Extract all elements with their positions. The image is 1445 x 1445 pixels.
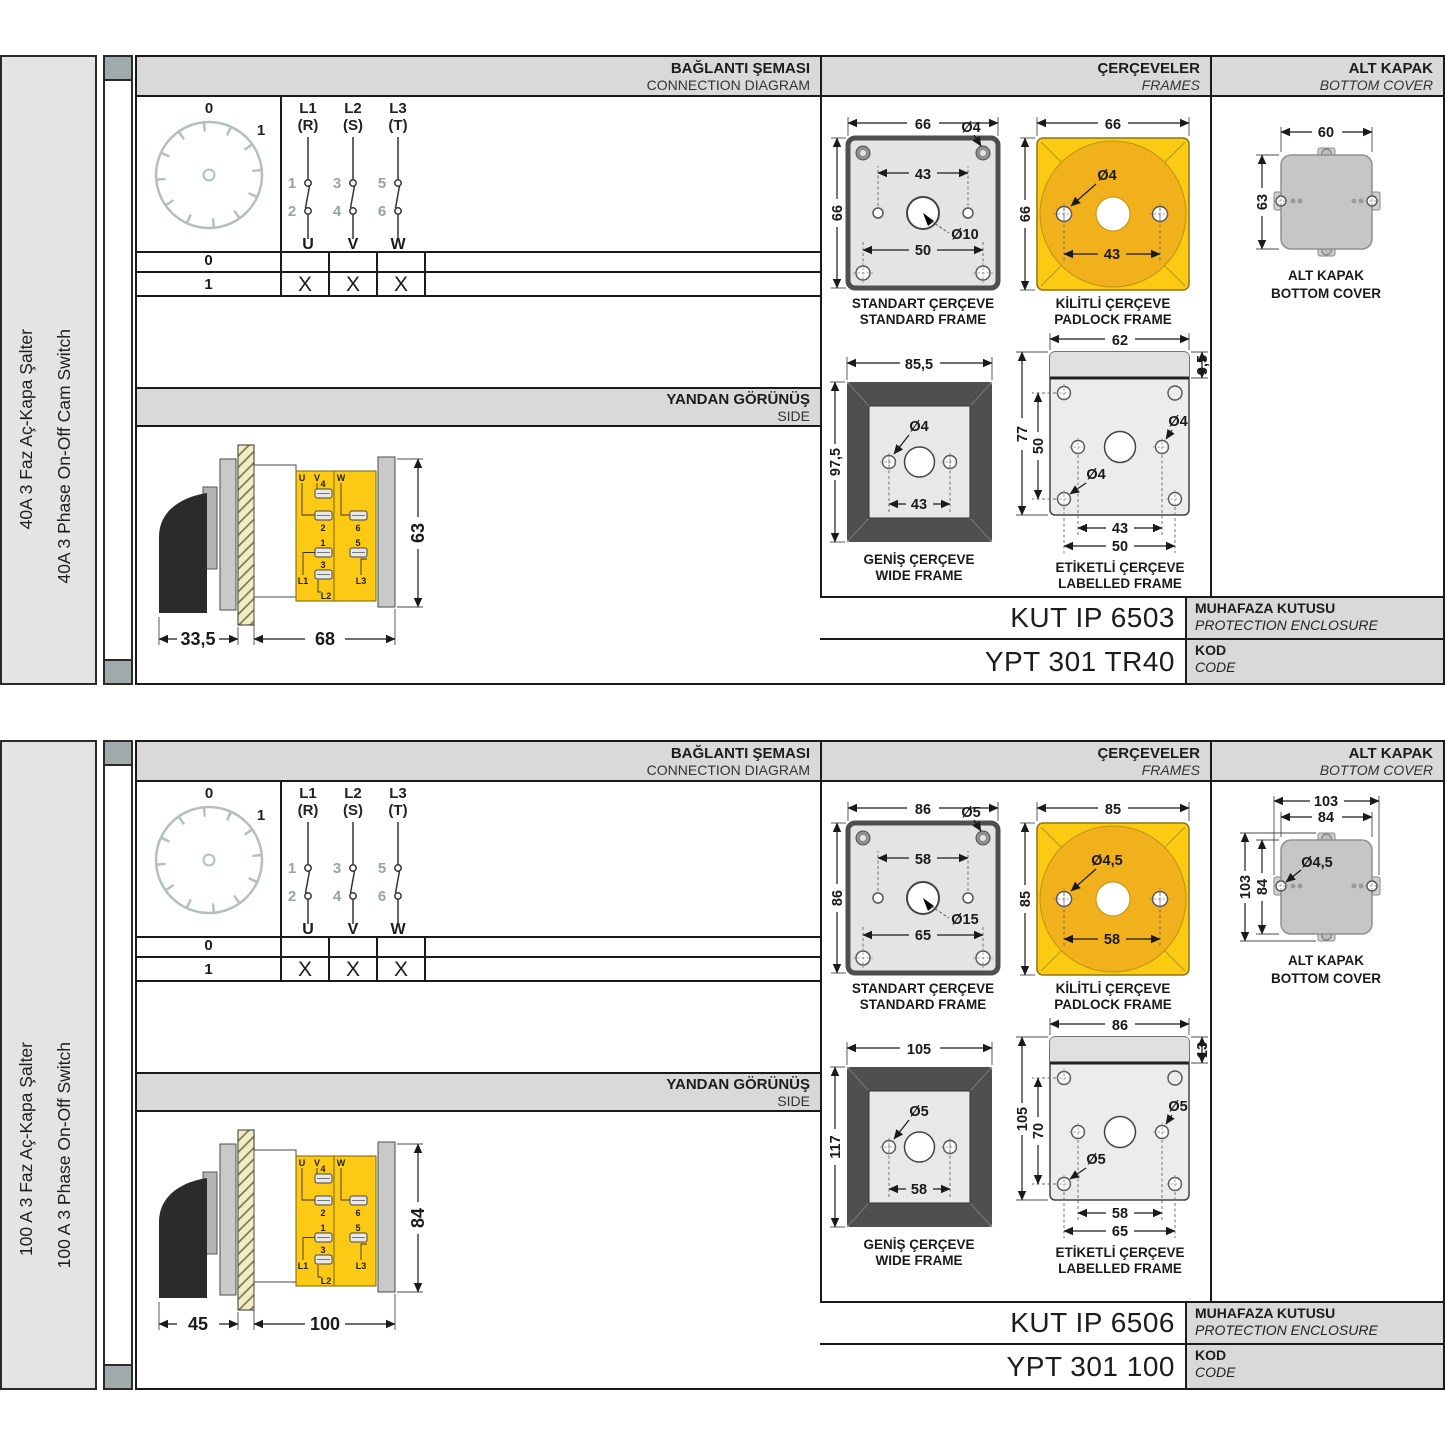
header-connection-en: CONNECTION DIAGRAM xyxy=(137,77,810,93)
phase-l2-label: L2 xyxy=(344,785,362,802)
dim-height: 84 xyxy=(408,1208,428,1228)
dim-outer-spacing: 50 xyxy=(1112,539,1128,555)
term-l1: L1 xyxy=(298,576,309,586)
dim-frame-height: 97,5 xyxy=(828,448,844,476)
product-code: YPT 301 100 xyxy=(820,1345,1185,1388)
dim-hole: Ø4,5 xyxy=(1091,853,1122,869)
labelled-frame-caption-tr: ETİKETLİ ÇERÇEVE xyxy=(1055,560,1184,575)
standard-frame-caption-en: STANDARD FRAME xyxy=(860,997,987,1012)
dim-handle-depth: 33,5 xyxy=(180,629,215,649)
cover-body xyxy=(1274,833,1380,941)
cover-caption-en: BOTTOM COVER xyxy=(1271,286,1381,301)
dim-cover-height: 84 xyxy=(1255,879,1271,895)
dim-hole-a: Ø5 xyxy=(1168,1099,1187,1115)
code-label: KOD CODE xyxy=(1185,640,1443,683)
table-position-0: 0 xyxy=(137,252,280,270)
dial-pos-0: 0 xyxy=(205,100,213,117)
header-side-en: SIDE xyxy=(137,408,810,424)
wide-frame-caption-en: WIDE FRAME xyxy=(876,568,963,583)
table-position-1: 1 xyxy=(137,274,280,296)
strip-square-top xyxy=(105,740,131,766)
phase-l2: L2 (S) 3 4 V xyxy=(333,785,363,938)
labelled-frame-caption-en: LABELLED FRAME xyxy=(1058,1261,1182,1276)
phase-r-label: (R) xyxy=(298,802,319,819)
contact-5: 5 xyxy=(378,860,386,877)
dim-handle-depth: 45 xyxy=(188,1314,208,1334)
phase-s-label: (S) xyxy=(343,802,363,819)
cover-caption-tr: ALT KAPAK xyxy=(1288,268,1364,283)
enclosure-label-en: PROTECTION ENCLOSURE xyxy=(1195,617,1443,634)
product-code: YPT 301 TR40 xyxy=(820,640,1185,683)
phase-contacts-drawing: L1 (R) 1 2 U L2 (S) 3 4 xyxy=(282,782,820,936)
datasheet-main: BAĞLANTI ŞEMASI CONNECTION DIAGRAM ÇERÇE… xyxy=(135,55,1445,685)
dim-corner-hole: Ø4 xyxy=(961,120,980,136)
switch-side-body xyxy=(159,445,395,625)
dim-strip-height: 9,5 xyxy=(1195,355,1211,375)
strip-square-top xyxy=(105,55,131,81)
dim-strip-height: 13 xyxy=(1195,1042,1211,1058)
dim-hole-spacing: 43 xyxy=(911,497,927,513)
dim-frame-width: 66 xyxy=(915,117,931,133)
dim-frame-width: 86 xyxy=(1112,1018,1128,1034)
enclosure-label: MUHAFAZA KUTUSU PROTECTION ENCLOSURE xyxy=(1185,1303,1443,1343)
dim-frame-height: 66 xyxy=(1018,206,1034,222)
enclosure-code: KUT IP 6503 xyxy=(820,598,1185,638)
phase-l3-label: L3 xyxy=(389,100,407,117)
bottom-cover-drawing: 60 63 ALT KAPAK BOTTOM COVER xyxy=(1222,102,1437,352)
phase-l3: L3 (T) 5 6 W xyxy=(378,100,408,253)
header-connection-en: CONNECTION DIAGRAM xyxy=(137,762,810,778)
dim-frame-height: 66 xyxy=(830,205,846,221)
phase-l2-label: L2 xyxy=(344,100,362,117)
term-5: 5 xyxy=(355,538,360,548)
term-v: V xyxy=(314,473,320,483)
dial-pos-1: 1 xyxy=(257,807,265,824)
side-view-drawing: U V W 4 2 6 1 5 3 L1 xyxy=(137,1112,820,1365)
dim-frame-width: 86 xyxy=(915,802,931,818)
header-frames: ÇERÇEVELER FRAMES xyxy=(822,57,1210,97)
term-2: 2 xyxy=(320,523,325,533)
term-l1: L1 xyxy=(298,1261,309,1271)
phase-s-label: (S) xyxy=(343,117,363,134)
binding-strip xyxy=(103,740,133,1390)
enclosure-code: KUT IP 6506 xyxy=(820,1303,1185,1343)
phase-contacts-drawing: L1 (R) 1 2 U L2 (S) 3 4 xyxy=(282,97,820,251)
dim-hole-spacing: 43 xyxy=(1104,247,1120,263)
contact-3: 3 xyxy=(333,860,341,877)
dim-hole-spacing: 43 xyxy=(915,167,931,183)
dim-cover-outer-height: 103 xyxy=(1238,875,1254,899)
dim-frame-width: 85,5 xyxy=(905,357,933,373)
term-w: W xyxy=(337,1158,346,1168)
term-l3: L3 xyxy=(356,576,367,586)
dim-corner-hole: Ø5 xyxy=(961,805,980,821)
header-connection-diagram: BAĞLANTI ŞEMASI CONNECTION DIAGRAM xyxy=(137,742,820,782)
header-connection-tr: BAĞLANTI ŞEMASI xyxy=(137,745,810,762)
contact-4: 4 xyxy=(333,888,342,905)
contact-3: 3 xyxy=(333,175,341,192)
term-w: W xyxy=(337,473,346,483)
table-x-u: X xyxy=(282,274,328,296)
header-side-tr: YANDAN GÖRÜNÜŞ xyxy=(137,1076,810,1093)
dim-frame-width: 105 xyxy=(907,1042,931,1058)
wide-frame-caption-en: WIDE FRAME xyxy=(876,1253,963,1268)
header-cover-tr: ALT KAPAK xyxy=(1212,745,1433,762)
term-4: 4 xyxy=(320,479,325,489)
dim-height: 63 xyxy=(408,523,428,543)
dim-hole-spacing: 58 xyxy=(1104,932,1120,948)
dim-cover-width: 84 xyxy=(1318,810,1334,826)
dim-inner-spacing: 43 xyxy=(1112,521,1128,537)
term-u: U xyxy=(299,473,306,483)
dim-frame-width: 66 xyxy=(1105,117,1121,133)
code-label-en: CODE xyxy=(1195,1364,1443,1381)
contact-6: 6 xyxy=(378,203,386,220)
dim-frame-height: 86 xyxy=(830,890,846,906)
term-v: V xyxy=(314,1158,320,1168)
table-position-1: 1 xyxy=(137,959,280,981)
dial-pos-0: 0 xyxy=(205,785,213,802)
phase-r-label: (R) xyxy=(298,117,319,134)
dim-body-length: 100 xyxy=(310,1314,340,1334)
dim-frame-height: 105 xyxy=(1015,1107,1031,1131)
bottom-cover-drawing: 84 84 103 103 Ø4,5 ALT KAPAK BOTTOM COVE… xyxy=(1222,787,1437,1037)
frame-hole xyxy=(856,146,870,160)
term-l3: L3 xyxy=(356,1261,367,1271)
enclosure-row: KUT IP 6503 MUHAFAZA KUTUSU PROTECTION E… xyxy=(820,596,1443,638)
dim-hole-b: Ø5 xyxy=(1086,1152,1105,1168)
dim-body-length: 68 xyxy=(315,629,335,649)
term-3: 3 xyxy=(320,560,325,570)
table-position-0: 0 xyxy=(137,937,280,955)
wide-frame-caption-tr: GENİŞ ÇERÇEVE xyxy=(863,552,974,567)
header-frames-tr: ÇERÇEVELER xyxy=(822,60,1200,77)
header-side-view: YANDAN GÖRÜNÜŞ SIDE xyxy=(137,387,820,427)
code-row: YPT 301 100 KOD CODE xyxy=(820,1343,1443,1388)
standard-frame-drawing: 86 Ø5 86 58 Ø15 65 STANDART ÇERÇEVE STAN… xyxy=(827,787,1007,1015)
standard-frame-caption-tr: STANDART ÇERÇEVE xyxy=(852,296,994,311)
padlock-frame-caption-tr: KİLİTLİ ÇERÇEVE xyxy=(1056,296,1171,311)
code-label-tr: KOD xyxy=(1195,642,1443,659)
dim-frame-height: 117 xyxy=(828,1135,844,1158)
standard-frame-drawing: 66 Ø4 66 43 Ø10 50 STANDART ÇERÇEVE STAN… xyxy=(827,102,1007,330)
enclosure-label-en: PROTECTION ENCLOSURE xyxy=(1195,1322,1443,1339)
labelled-frame-drawing: 86 13 105 70 Ø5 Ø5 58 xyxy=(1012,1012,1212,1282)
phase-l3: L3 (T) 5 6 W xyxy=(378,785,408,938)
wide-frame-drawing: 105 117 Ø5 58 GENİŞ ÇERÇEVE WIDE FRAME xyxy=(827,1017,1007,1272)
phase-l1: L1 (R) 1 2 U xyxy=(288,785,319,938)
dim-outer-spacing: 65 xyxy=(1112,1224,1128,1240)
cover-caption-tr: ALT KAPAK xyxy=(1288,953,1364,968)
dim-cover-height: 63 xyxy=(1255,194,1271,210)
padlock-frame-caption-tr: KİLİTLİ ÇERÇEVE xyxy=(1056,981,1171,996)
dim-frame-height: 77 xyxy=(1015,426,1031,442)
dim-lower-spacing: 50 xyxy=(915,243,931,259)
wide-frame-caption-tr: GENİŞ ÇERÇEVE xyxy=(863,1237,974,1252)
phase-l1-label: L1 xyxy=(299,100,317,117)
switch-dial-drawing: 0 1 xyxy=(137,97,280,251)
table-divider xyxy=(424,936,426,982)
dim-cover-width: 60 xyxy=(1318,125,1334,141)
code-label: KOD CODE xyxy=(1185,1345,1443,1388)
phase-l2: L2 (S) 3 4 V xyxy=(333,100,363,253)
dim-hole-spacing: 58 xyxy=(911,1182,927,1198)
dim-center-hole: Ø15 xyxy=(951,912,978,928)
code-row: YPT 301 TR40 KOD CODE xyxy=(820,638,1443,683)
header-side-en: SIDE xyxy=(137,1093,810,1109)
term-u: U xyxy=(299,1158,306,1168)
dim-lower-spacing: 65 xyxy=(915,928,931,944)
divider-left-frames xyxy=(820,742,822,1388)
table-x-v: X xyxy=(330,274,376,296)
dim-hole-v-spacing: 70 xyxy=(1031,1123,1047,1139)
header-frames-tr: ÇERÇEVELER xyxy=(822,745,1200,762)
panel-100a: 100 A 3 Faz Aç-Kapa Şalter 100 A 3 Phase… xyxy=(0,740,1445,1390)
standard-frame-caption-tr: STANDART ÇERÇEVE xyxy=(852,981,994,996)
phase-l3-label: L3 xyxy=(389,785,407,802)
header-connection-diagram: BAĞLANTI ŞEMASI CONNECTION DIAGRAM xyxy=(137,57,820,97)
enclosure-label-tr: MUHAFAZA KUTUSU xyxy=(1195,600,1443,617)
datasheet-main: BAĞLANTI ŞEMASI CONNECTION DIAGRAM ÇERÇE… xyxy=(135,740,1445,1390)
contact-1: 1 xyxy=(288,860,296,877)
header-bottom-cover: ALT KAPAK BOTTOM COVER xyxy=(1212,57,1443,97)
contact-6: 6 xyxy=(378,888,386,905)
phase-l1: L1 (R) 1 2 U xyxy=(288,100,319,253)
term-6: 6 xyxy=(355,1208,360,1218)
header-side-tr: YANDAN GÖRÜNÜŞ xyxy=(137,391,810,408)
contact-2: 2 xyxy=(288,203,296,220)
product-sidebar: 40A 3 Faz Aç-Kapa Şalter 40A 3 Phase On-… xyxy=(0,55,97,685)
dim-cover-outer-width: 103 xyxy=(1314,794,1338,810)
header-side-view: YANDAN GÖRÜNÜŞ SIDE xyxy=(137,1072,820,1112)
enclosure-label: MUHAFAZA KUTUSU PROTECTION ENCLOSURE xyxy=(1185,598,1443,638)
standard-frame-caption-en: STANDARD FRAME xyxy=(860,312,987,327)
padlock-frame-drawing: 66 66 Ø4 43 KİLİTLİ ÇERÇEVE PADLOCK FRAM… xyxy=(1017,102,1197,330)
padlock-frame-drawing: 85 85 Ø4,5 58 KİLİTLİ ÇERÇEVE PADLOCK FR… xyxy=(1017,787,1197,1015)
table-x-v: X xyxy=(330,959,376,981)
phase-l1-label: L1 xyxy=(299,785,317,802)
header-frames-en: FRAMES xyxy=(822,77,1200,93)
dim-center-hole: Ø10 xyxy=(951,227,978,243)
switch-side-body xyxy=(159,1130,395,1310)
table-divider xyxy=(424,251,426,297)
term-5: 5 xyxy=(355,1223,360,1233)
padlock-frame-caption-en: PADLOCK FRAME xyxy=(1054,997,1172,1012)
term-2: 2 xyxy=(320,1208,325,1218)
dim-hole: Ø4 xyxy=(909,419,928,435)
contact-5: 5 xyxy=(378,175,386,192)
term-l2: L2 xyxy=(321,591,332,601)
table-x-u: X xyxy=(282,959,328,981)
frame-hole xyxy=(856,831,870,845)
code-label-tr: KOD xyxy=(1195,1347,1443,1364)
dim-hole-spacing: 58 xyxy=(915,852,931,868)
dial-pos-1: 1 xyxy=(257,122,265,139)
enclosure-row: KUT IP 6506 MUHAFAZA KUTUSU PROTECTION E… xyxy=(820,1301,1443,1343)
header-connection-tr: BAĞLANTI ŞEMASI xyxy=(137,60,810,77)
cover-caption-en: BOTTOM COVER xyxy=(1271,971,1381,986)
labelled-frame-caption-tr: ETİKETLİ ÇERÇEVE xyxy=(1055,1245,1184,1260)
term-l2: L2 xyxy=(321,1276,332,1286)
product-sidebar: 100 A 3 Faz Aç-Kapa Şalter 100 A 3 Phase… xyxy=(0,740,97,1390)
term-1: 1 xyxy=(320,1223,325,1233)
dim-hole-a: Ø4 xyxy=(1168,414,1187,430)
header-cover-en: BOTTOM COVER xyxy=(1212,77,1433,93)
contact-1: 1 xyxy=(288,175,296,192)
table-x-w: X xyxy=(378,274,424,296)
header-cover-en: BOTTOM COVER xyxy=(1212,762,1433,778)
enclosure-label-tr: MUHAFAZA KUTUSU xyxy=(1195,1305,1443,1322)
strip-square-bottom xyxy=(105,659,131,685)
dim-hole: Ø5 xyxy=(909,1104,928,1120)
dim-hole-v-spacing: 50 xyxy=(1031,438,1047,454)
phase-t-label: (T) xyxy=(388,117,407,134)
strip-square-bottom xyxy=(105,1364,131,1390)
frame-hole xyxy=(976,146,990,160)
dim-hole: Ø4 xyxy=(1097,168,1116,184)
code-label-en: CODE xyxy=(1195,659,1443,676)
dim-frame-width: 85 xyxy=(1105,802,1121,818)
header-bottom-cover: ALT KAPAK BOTTOM COVER xyxy=(1212,742,1443,782)
binding-strip xyxy=(103,55,133,685)
product-title-tr: 100 A 3 Faz Aç-Kapa Şalter xyxy=(16,1042,37,1256)
padlock-frame-caption-en: PADLOCK FRAME xyxy=(1054,312,1172,327)
header-frames-en: FRAMES xyxy=(822,762,1200,778)
wide-frame-drawing: 85,5 97,5 Ø4 43 GENİŞ ÇERÇEVE WIDE FRAME xyxy=(827,332,1007,587)
product-title-tr: 40A 3 Faz Aç-Kapa Şalter xyxy=(16,329,37,529)
cover-body xyxy=(1274,148,1380,256)
labelled-frame-caption-en: LABELLED FRAME xyxy=(1058,576,1182,591)
product-title-en: 100 A 3 Phase On-Off Switch xyxy=(54,1042,75,1268)
frame-hole xyxy=(976,831,990,845)
header-frames: ÇERÇEVELER FRAMES xyxy=(822,742,1210,782)
term-1: 1 xyxy=(320,538,325,548)
side-view-drawing: U V W 4 2 6 1 5 3 L1 xyxy=(137,427,820,680)
dim-frame-width: 62 xyxy=(1112,333,1128,349)
dim-inner-spacing: 58 xyxy=(1112,1206,1128,1222)
contact-4: 4 xyxy=(333,203,342,220)
dim-cover-hole: Ø4,5 xyxy=(1301,855,1332,871)
header-cover-tr: ALT KAPAK xyxy=(1212,60,1433,77)
term-4: 4 xyxy=(320,1164,325,1174)
product-title-en: 40A 3 Phase On-Off Cam Switch xyxy=(54,329,75,584)
panel-40a: 40A 3 Faz Aç-Kapa Şalter 40A 3 Phase On-… xyxy=(0,55,1445,685)
term-3: 3 xyxy=(320,1245,325,1255)
term-6: 6 xyxy=(355,523,360,533)
table-x-w: X xyxy=(378,959,424,981)
contact-2: 2 xyxy=(288,888,296,905)
switch-dial-drawing: 0 1 xyxy=(137,782,280,936)
dim-frame-height: 85 xyxy=(1018,891,1034,907)
divider-left-frames xyxy=(820,57,822,683)
labelled-frame-drawing: 62 9,5 77 50 Ø4 Ø4 43 xyxy=(1012,327,1212,597)
dim-hole-b: Ø4 xyxy=(1086,467,1105,483)
phase-t-label: (T) xyxy=(388,802,407,819)
